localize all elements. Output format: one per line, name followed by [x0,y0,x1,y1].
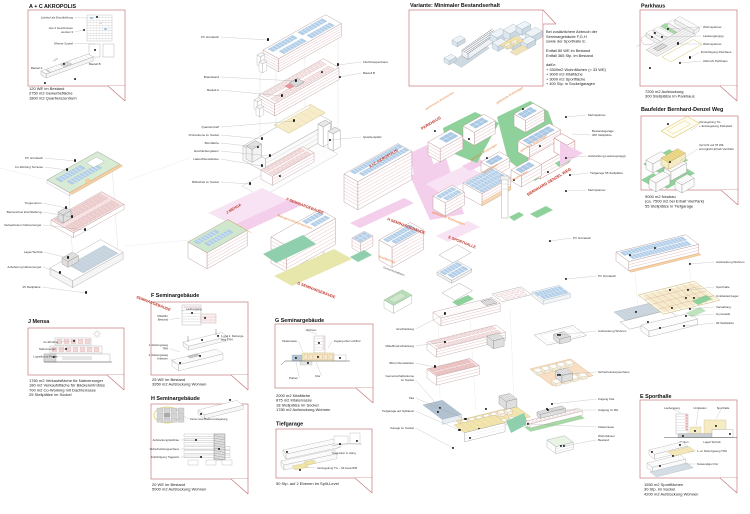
svg-text:Tiefgarage 55 Stellplätze: Tiefgarage 55 Stellplätze [590,171,623,175]
svg-text:im Sockel: im Sockel [401,378,414,382]
svg-text:Mehrspänner: Mehrspänner [588,113,606,117]
svg-text:Lichthof als Erschließung: Lichthof als Erschließung [41,16,74,20]
svg-text:Laubengang: Laubengang [186,307,202,311]
svg-text:Zugang Kita: Zugang Kita [598,397,615,401]
svg-text:Sporthalle: Sporthalle [716,285,730,289]
svg-text:Wohnspänner: Wohnspänner [703,25,722,29]
svg-text:+ Entsiegelung Parkplatz: + Entsiegelung Parkplatz [699,124,733,128]
svg-text:Wohnen: Wohnen [306,328,317,332]
svg-text:ermöglicht Erhalt VierPark: ermöglicht Erhalt VierPark [699,147,734,151]
svg-text:Aufgang zu BG: Aufgang zu BG [598,408,619,412]
svg-text:PV Gründach: PV Gründach [598,274,616,278]
svg-text:Sicherheitstreppenhaus: Sicherheitstreppenhaus [598,370,630,374]
svg-text:Zugang über Lichthof: Zugang über Lichthof [334,339,361,343]
svg-text:Barrierefreie Erschließung: Barrierefreie Erschließung [7,210,42,214]
svg-text:Garage im Sockel: Garage im Sockel [390,426,414,430]
svg-text:Kita: Kita [315,374,320,378]
svg-text:Ertüchtigung Parkhaus: Ertüchtigung Parkhaus [701,50,732,54]
svg-text:F Seminargebäude: F Seminargebäude [151,293,199,299]
svg-text:E Sporthalle: E Sporthalle [640,394,671,400]
svg-text:Umkleiden/Lager: Umkleiden/Lager [716,294,739,298]
svg-text:Aufstockung Wohnen: Aufstockung Wohnen [598,329,627,333]
svg-text:55 Stellplätze in Tiefgarage: 55 Stellplätze in Tiefgarage [645,203,694,208]
svg-text:Sporthalle: Sporthalle [717,406,730,410]
svg-text:Entfall 365 Stp. im Bestand: Entfall 365 Stp. im Bestand [546,53,593,58]
svg-text:300 Stellplätze im Parkhaus: 300 Stellplätze im Parkhaus [645,94,695,99]
svg-text:Kitaterrasse: Kitaterrasse [598,425,614,429]
svg-text:Bauteil B: Bauteil B [89,62,101,66]
svg-text:H Seminargebäude: H Seminargebäude [151,396,200,402]
svg-text:+ 400 Stp. in Sockelgaragen: + 400 Stp. in Sockelgaragen [546,81,595,86]
svg-text:300 Stellplätze: 300 Stellplätze [592,133,612,137]
svg-text:weg TRH: weg TRH [221,338,233,342]
svg-text:Anlieferung Nahversorger: Anlieferung Nahversorger [7,265,41,269]
svg-text:PV Gründach: PV Gründach [201,35,219,39]
svg-text:Aufstockung/Holzbau: Aufstockung/Holzbau [153,438,180,442]
svg-text:Tiefgarage auf Splitlevel: Tiefgarage auf Splitlevel [382,409,414,413]
svg-text:Bauteil B: Bauteil B [363,71,375,75]
svg-text:Anleitern: Anleitern [157,357,168,361]
svg-text:Laubengangtyp: Laubengangtyp [703,34,724,38]
svg-text:Sicherheitstreppenhaus: Sicherheitstreppenhaus [150,447,180,451]
svg-text:36 Stellplätze: 36 Stellplätze [716,321,734,325]
svg-text:5000 m2 Aufstockung Wohnen: 5000 m2 Aufstockung Wohnen [152,487,206,492]
svg-text:Variante: Minimaler Bestandser: Variante: Minimaler Bestandserhalt [410,3,500,9]
svg-text:3950 m2 Aufstockung Wohnen: 3950 m2 Aufstockung Wohnen [152,382,206,387]
svg-text:50 Stp. auf 2 Ebenen im Split-: 50 Stp. auf 2 Ebenen im Split-Level [276,481,339,486]
svg-text:Quartiersplatz: Quartiersplatz [363,135,382,139]
svg-text:Erschließung: Erschließung [396,327,414,331]
svg-text:Tiefgarage: Tiefgarage [276,422,303,428]
svg-text:Logistik und Parken: Logistik und Parken [33,355,58,359]
svg-text:Verwaltung: Verwaltung [716,305,731,309]
svg-text:Laubengang: Laubengang [664,406,680,410]
svg-text:Bestand: Bestand [158,318,169,322]
svg-text:G Seminargebäude: G Seminargebäude [275,318,324,324]
svg-text:Bauteil A: Bauteil A [31,66,42,70]
svg-text:sowie der Sporthalle E:: sowie der Sporthalle E: [546,39,586,44]
svg-text:Offener Sockel: Offener Sockel [54,42,73,46]
svg-text:Versiegelung TG – SF Haus B/B: Versiegelung TG – SF Haus B/B [317,466,357,470]
svg-text:Mittelflurerschließung: Mittelflurerschließung [385,344,414,348]
svg-text:Co-Working Terrasse: Co-Working Terrasse [15,165,43,169]
svg-text:Bestand: Bestand [598,438,609,442]
svg-text:Aufstockung Wohnen: Aufstockung Wohnen [716,260,745,264]
svg-text:Bürofläche: Bürofläche [205,141,220,145]
svg-text:Notwendiger Flur: Notwendiger Flur [697,462,718,466]
svg-text:Aufstockung Laubengangtyp: Aufstockung Laubengangtyp [588,154,626,158]
svg-text:Kita: Kita [409,396,415,400]
svg-text:Proberäume im Sockel: Proberäume im Sockel [189,133,220,137]
svg-text:A + C AKROPOLIS: A + C AKROPOLIS [29,4,76,10]
svg-text:Abbruch Parkhaus: Abbruch Parkhaus [703,59,728,63]
svg-text:Nahversorger: Nahversorger [39,347,56,351]
svg-text:Bauteil A: Bauteil A [207,88,219,92]
svg-text:1800 m2 Quartierszentrum: 1800 m2 Quartierszentrum [29,95,77,100]
svg-text:Mehrspänner: Mehrspänner [588,188,606,192]
svg-text:werden 3: werden 3 [61,30,73,34]
svg-text:Baufelder Bernhard-Denzel Weg: Baufelder Bernhard-Denzel Weg [641,107,723,113]
svg-text:Integration in Hang: Integration in Hang [332,451,356,455]
svg-text:Verkaufsraum Nahversorger: Verkaufsraum Nahversorger [4,223,42,227]
svg-text:Lager/Technik: Lager/Technik [703,440,721,444]
svg-text:Wohnspänner: Wohnspänner [703,42,722,46]
svg-text:25 Stellplätze: 25 Stellplätze [22,285,40,289]
svg-text:TRH: TRH [162,347,168,351]
svg-text:Büro/ Dienstleister: Büro/ Dienstleister [389,361,414,365]
svg-text:1780 m2 Aufstockung Wohnen: 1780 m2 Aufstockung Wohnen [276,407,330,412]
svg-text:Läden/Dienstleister: Läden/Dienstleister [193,157,219,161]
svg-text:25 Stellplätze im Sockel: 25 Stellplätze im Sockel [29,392,72,397]
svg-text:Quartierstreff: Quartierstreff [202,125,220,129]
svg-text:Lager/Technik: Lager/Technik [24,250,43,254]
svg-text:4200 m2 Aufstockung Wohnen: 4200 m2 Aufstockung Wohnen [644,491,698,496]
svg-text:Treppenturm: Treppenturm [24,201,42,205]
svg-text:J Mensa: J Mensa [28,319,50,325]
svg-text:PV Gründach: PV Gründach [25,156,43,160]
svg-text:Parkhaus: Parkhaus [641,4,665,10]
svg-text:1.+2. Rettungsweg TRH: 1.+2. Rettungsweg TRH [697,449,727,453]
svg-text:Brandwand: Brandwand [204,75,220,79]
svg-text:Erschließungskern: Erschließungskern [194,149,219,153]
svg-text:PV Gründach: PV Gründach [573,236,591,240]
svg-text:Keine neue Bodenversiegelung: Keine neue Bodenversiegelung [190,417,228,421]
svg-text:Parken: Parken [289,376,298,380]
svg-text:Ertüchtigung Tragwerk: Ertüchtigung Tragwerk [151,455,180,459]
svg-text:Fluchttreppenhaus: Fluchttreppenhaus [363,60,388,64]
svg-text:Co-Working: Co-Working [43,340,58,344]
svg-text:Umkleiden: Umkleiden [693,406,707,410]
svg-text:Bibliothek im Sockel: Bibliothek im Sockel [192,180,219,184]
svg-text:Kitaterrasse: Kitaterrasse [282,339,297,343]
svg-text:Gymnastik: Gymnastik [716,312,731,316]
